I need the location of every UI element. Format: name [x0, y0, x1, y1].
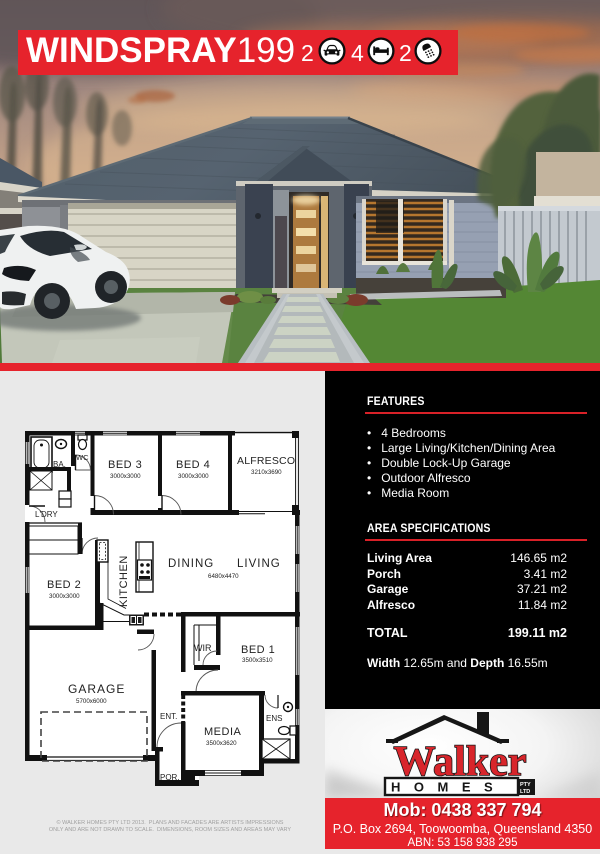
svg-text:3000x3000: 3000x3000 [49, 593, 80, 600]
svg-text:POR.: POR. [160, 773, 180, 782]
svg-text:ALFRESCO: ALFRESCO [237, 455, 295, 467]
svg-text:KITCHEN: KITCHEN [118, 555, 130, 607]
svg-text:BED 4: BED 4 [176, 459, 210, 471]
svg-text:WC: WC [76, 453, 89, 462]
svg-text:PTY: PTY [520, 782, 531, 788]
svg-text:MEDIA: MEDIA [204, 726, 242, 738]
svg-text:BED 2: BED 2 [47, 579, 81, 591]
svg-text:3000x3000: 3000x3000 [110, 473, 141, 480]
svg-text:3210x3690: 3210x3690 [251, 469, 282, 476]
svg-text:L'DRY: L'DRY [35, 510, 58, 519]
svg-text:LIVING: LIVING [237, 558, 281, 570]
svg-text:3500x3510: 3500x3510 [242, 657, 273, 664]
svg-text:5700x6000: 5700x6000 [76, 698, 107, 705]
svg-text:HOMES: HOMES [391, 780, 506, 795]
svg-text:GARAGE: GARAGE [68, 682, 125, 696]
svg-text:ENS: ENS [266, 714, 282, 723]
svg-text:3000x3000: 3000x3000 [178, 473, 209, 480]
svg-text:LTD: LTD [520, 789, 530, 795]
svg-text:DINING: DINING [168, 558, 214, 570]
svg-text:BED 3: BED 3 [108, 459, 142, 471]
svg-text:6480x4470: 6480x4470 [208, 573, 239, 580]
svg-text:ENT.: ENT. [160, 712, 177, 721]
svg-text:3500x3620: 3500x3620 [206, 740, 237, 747]
svg-text:BED 1: BED 1 [241, 644, 275, 656]
svg-text:WIR: WIR [194, 643, 212, 653]
